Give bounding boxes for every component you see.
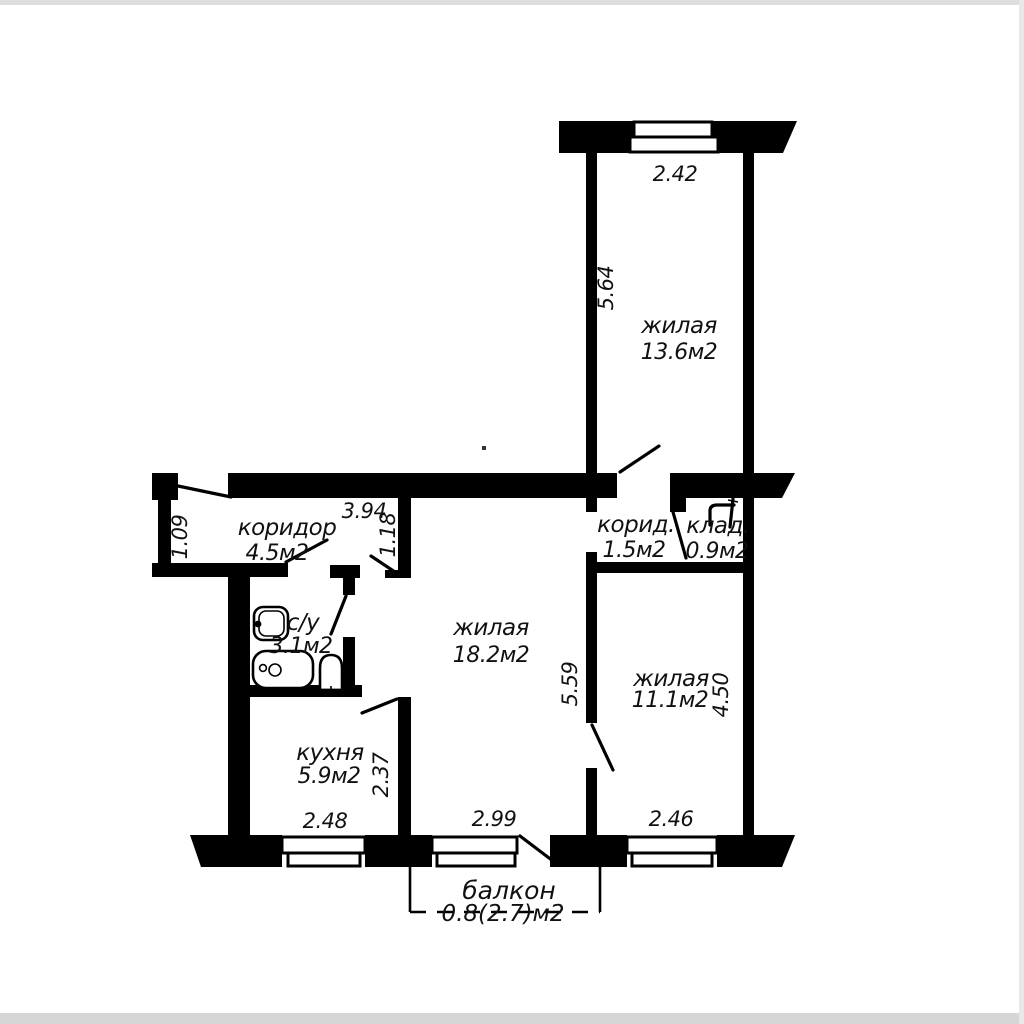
door-swing-living-right xyxy=(592,725,613,770)
window-living-top-b xyxy=(630,137,718,152)
dim-living-top-width: 2.42 xyxy=(653,162,698,186)
room-label-living-main: жилая xyxy=(452,615,529,641)
wall-main-horizontal xyxy=(228,473,617,498)
door-swing-closet xyxy=(673,512,686,558)
window-living-main-b xyxy=(437,853,515,866)
washbasin-tap-icon xyxy=(255,621,262,628)
scan-edge-bottom xyxy=(0,1013,1024,1024)
wall-hall-small-stub xyxy=(586,498,597,512)
wall-divider-upper xyxy=(586,552,597,723)
wall-divider-lower xyxy=(586,768,597,835)
room-area-living-right: 11.1м2 xyxy=(632,688,709,713)
door-swing-balcony xyxy=(520,836,553,861)
wall-bath-right-stub xyxy=(343,577,355,595)
dim-living-main-height: 5.59 xyxy=(558,661,582,706)
room-area-hall: 4.5м2 xyxy=(245,541,308,566)
wall-closet-left-stub xyxy=(670,498,686,512)
toilet-icon xyxy=(320,655,342,690)
door-swings xyxy=(178,446,686,861)
scan-edge-right xyxy=(1019,0,1024,1024)
wall-bath-door-stub xyxy=(330,565,360,578)
scan-edge-top xyxy=(0,0,1024,5)
window-living-top-a xyxy=(634,122,712,137)
wall-bottom-right xyxy=(717,835,795,867)
wall-closet-top xyxy=(670,473,795,498)
room-label-closet: клад. xyxy=(686,513,749,539)
room-area-balcony: 0.8(2.7)м2 xyxy=(441,901,564,927)
dim-living-main-width: 2.99 xyxy=(472,807,517,831)
room-area-bathroom: 3.1м2 xyxy=(269,634,332,659)
floor-plan-canvas: жилая 13.6м2 2.42 5.64 коридор 4.5м2 3.9… xyxy=(0,0,1024,1024)
scan-speck xyxy=(482,446,486,450)
room-area-living-top: 13.6м2 xyxy=(641,340,718,365)
room-area-kitchen: 5.9м2 xyxy=(297,764,360,789)
wall-left-thick xyxy=(228,577,250,838)
window-living-main-a xyxy=(432,837,517,853)
window-living-right-b xyxy=(632,853,712,866)
closet-door-tick-icon xyxy=(728,500,738,502)
wall-entrance-stub xyxy=(152,473,178,500)
floor-plan-page: жилая 13.6м2 2.42 5.64 коридор 4.5м2 3.9… xyxy=(0,0,1024,1024)
door-swing-kitchen xyxy=(362,699,397,713)
dim-living-top-height: 5.64 xyxy=(594,266,618,311)
room-area-closet: 0.9м2 xyxy=(685,539,748,564)
wall-bottom-mid1 xyxy=(365,835,432,867)
room-label-hall-small: корид. xyxy=(597,512,675,538)
window-kitchen-b xyxy=(288,853,360,866)
room-label-kitchen: кухня xyxy=(296,740,364,766)
dim-hall-wall: 1.18 xyxy=(376,512,400,557)
window-kitchen-a xyxy=(282,837,365,853)
wall-bottom-mid2 xyxy=(550,835,627,867)
dim-hall-left-height: 1.09 xyxy=(168,514,192,559)
door-swing-living-top xyxy=(620,446,659,472)
room-label-bathroom: с/у xyxy=(287,610,320,636)
dim-kitchen-width: 2.48 xyxy=(303,809,348,833)
room-label-living-top: жилая xyxy=(640,313,717,339)
room-label-hall: коридор xyxy=(238,515,337,541)
door-swing-entrance xyxy=(178,486,231,497)
dim-kitchen-height: 2.37 xyxy=(369,751,393,797)
labels: жилая 13.6м2 2.42 5.64 коридор 4.5м2 3.9… xyxy=(168,162,750,927)
dim-living-right-height: 4.50 xyxy=(709,672,733,717)
wall-bath-right-lower xyxy=(343,637,355,690)
wall-kitchen-right xyxy=(398,697,411,838)
wall-living-top-left xyxy=(586,153,597,473)
room-area-hall-small: 1.5м2 xyxy=(602,538,665,563)
wall-bottom-left xyxy=(190,835,282,867)
room-area-living-main: 18.2м2 xyxy=(453,643,530,668)
walls xyxy=(152,121,797,867)
dim-living-right-width: 2.46 xyxy=(649,807,694,831)
window-living-right-a xyxy=(627,837,717,853)
door-swing-bath-inner xyxy=(331,596,346,634)
